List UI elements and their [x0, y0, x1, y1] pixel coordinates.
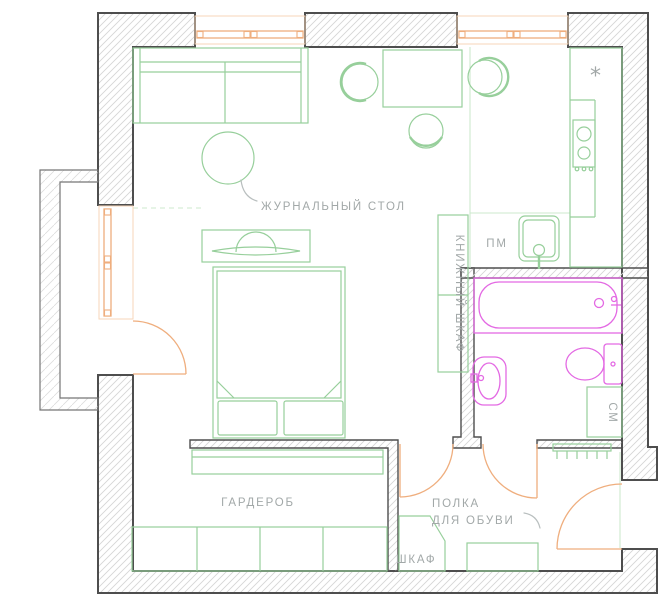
label-closet: ШКАФ	[396, 554, 436, 566]
balcony-walls	[40, 170, 98, 410]
balcony-door	[133, 321, 186, 374]
window-balcony	[99, 206, 133, 319]
bathroom-sink	[471, 357, 506, 405]
entrance-door	[557, 484, 622, 549]
label-bookcase: КНИЖНЫЙ ШКАФ	[453, 235, 466, 354]
tv-console	[202, 230, 310, 262]
shoe-shelf-leader	[524, 513, 540, 528]
pillow-right	[284, 401, 343, 435]
label-shoe-shelf-line2: ДЛЯ ОБУВИ	[432, 515, 515, 527]
doors	[133, 321, 622, 549]
toilet	[566, 344, 622, 384]
floor-plan-drawing: ЖУРНАЛЬНЫЙ СТОЛ ПМ КНИЖНЫЙ ШКАФ СМ ГАРДЕ…	[0, 0, 660, 608]
kitchen	[519, 48, 622, 269]
wall-left-bottom-and-bottom	[98, 375, 657, 593]
dining-chair-bottom	[409, 114, 443, 148]
wardrobe-room-furniture	[132, 450, 387, 571]
label-shoe-shelf-line1: ПОЛКА	[432, 498, 480, 510]
hallway-furniture	[399, 444, 611, 571]
wall-top-left	[98, 13, 195, 205]
bathtub	[474, 278, 622, 333]
bed	[213, 267, 345, 438]
wardrobe-cabinets	[132, 527, 387, 571]
stove	[573, 120, 595, 171]
dining-set	[341, 50, 508, 148]
bedroom-hall-door	[400, 444, 453, 497]
dining-table	[383, 50, 462, 107]
shoe-shelf	[467, 543, 538, 571]
tv-icon	[236, 232, 276, 252]
label-washing-machine: СМ	[606, 402, 618, 423]
window-top-1	[195, 16, 305, 44]
floor-zone-lines	[133, 47, 620, 548]
sofa	[133, 48, 308, 123]
fridge-marker-icon: *	[590, 64, 601, 89]
coffee-table-leader	[241, 180, 257, 201]
coffee-table	[202, 132, 254, 184]
label-coffee-table: ЖУРНАЛЬНЫЙ СТОЛ	[261, 200, 406, 213]
kitchen-sink	[519, 216, 559, 269]
window-top-2	[457, 16, 568, 44]
wall-bathroom-top	[461, 268, 648, 278]
label-wardrobe: ГАРДЕРОБ	[221, 497, 295, 509]
interior-walls	[190, 268, 648, 571]
pillow-left	[218, 401, 277, 435]
dining-chair-right	[468, 58, 508, 96]
label-dishwasher: ПМ	[486, 238, 507, 250]
annotations: ЖУРНАЛЬНЫЙ СТОЛ ПМ КНИЖНЫЙ ШКАФ СМ ГАРДЕ…	[221, 64, 618, 566]
bathroom-fixtures	[471, 278, 622, 405]
wardrobe-rail	[192, 450, 383, 474]
bathroom-door	[483, 444, 537, 498]
dining-chair-left	[341, 63, 378, 101]
wall-top-middle	[305, 13, 457, 47]
floor-plan-canvas: ЖУРНАЛЬНЫЙ СТОЛ ПМ КНИЖНЫЙ ШКАФ СМ ГАРДЕ…	[0, 0, 660, 608]
